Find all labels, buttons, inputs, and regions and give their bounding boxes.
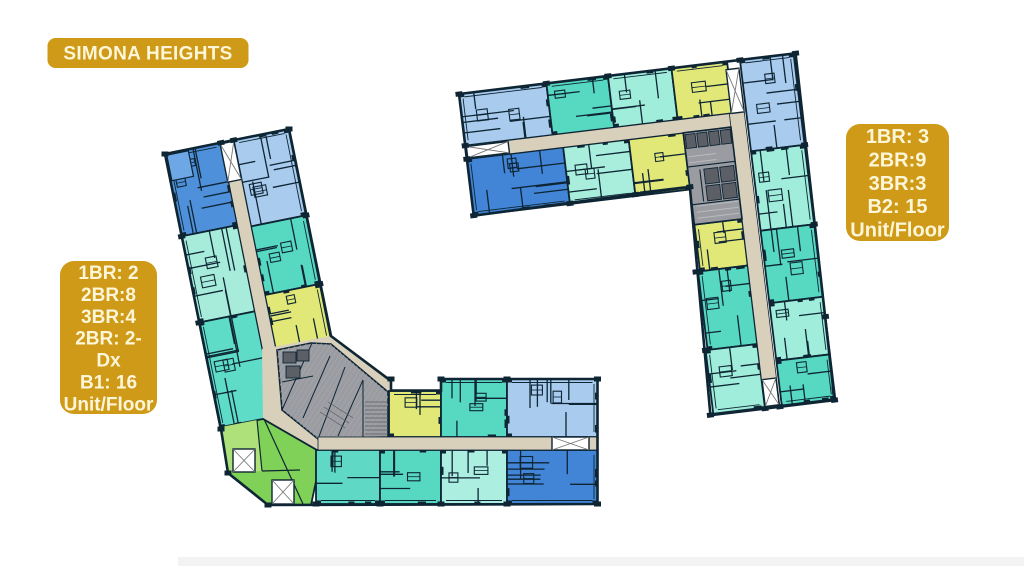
svg-text:2BR: 2-: 2BR: 2-	[75, 329, 142, 350]
svg-text:2BR:9: 2BR:9	[869, 149, 927, 171]
svg-text:3BR:4: 3BR:4	[81, 307, 136, 328]
svg-text:2BR:8: 2BR:8	[81, 285, 136, 306]
svg-text:B1: 16: B1: 16	[80, 373, 137, 394]
svg-text:Dx: Dx	[96, 351, 121, 372]
svg-text:3BR:3: 3BR:3	[869, 173, 927, 195]
svg-text:1BR: 3: 1BR: 3	[866, 126, 929, 148]
svg-text:Unit/Floor: Unit/Floor	[64, 394, 154, 415]
svg-text:1BR: 2: 1BR: 2	[78, 263, 138, 284]
svg-text:SIMONA HEIGHTS: SIMONA HEIGHTS	[63, 44, 232, 65]
svg-text:B2: 15: B2: 15	[867, 196, 927, 218]
svg-text:Unit/Floor: Unit/Floor	[850, 220, 945, 242]
